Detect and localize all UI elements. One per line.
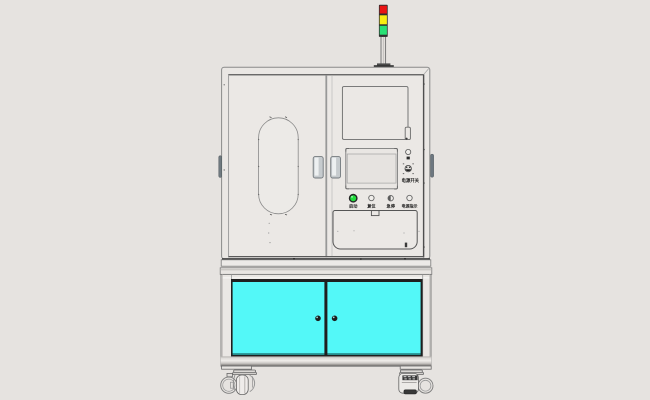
svg-text:启动: 启动 (349, 202, 358, 209)
svg-text:电源指示: 电源指示 (402, 202, 418, 208)
svg-text:急停: 急停 (387, 202, 396, 209)
svg-text:电源开关: 电源开关 (402, 177, 420, 184)
svg-text:复位: 复位 (366, 202, 376, 209)
